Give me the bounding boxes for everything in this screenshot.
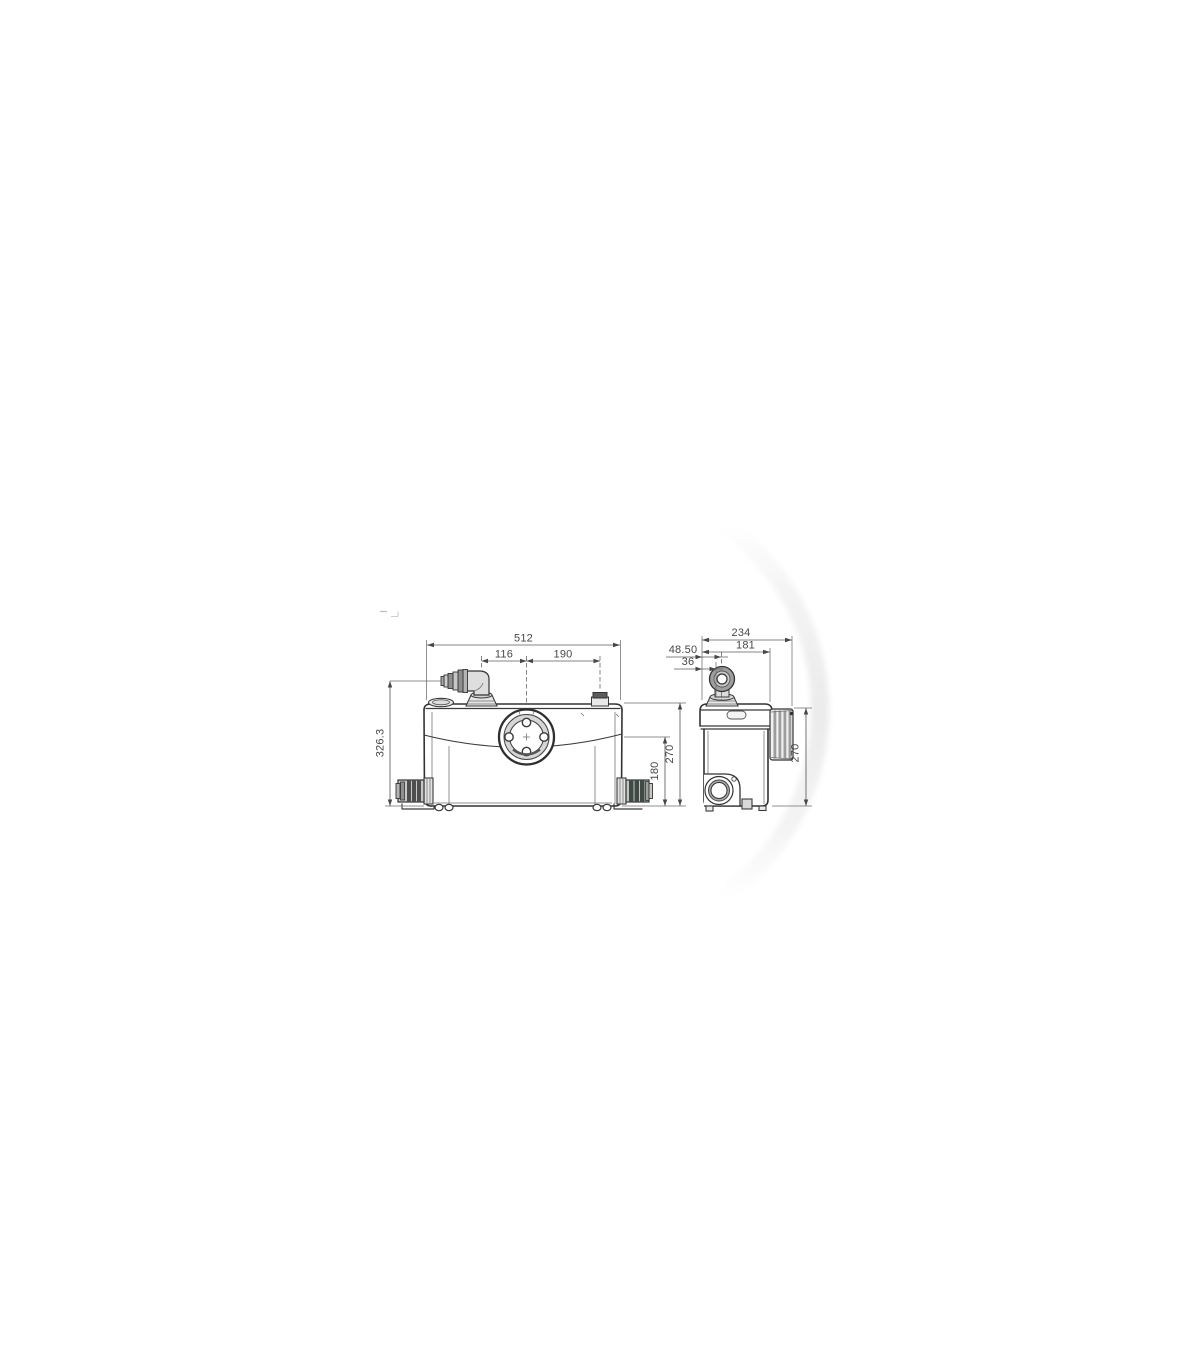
dim-front-inlet-height: 180 — [649, 762, 661, 781]
side-inlet-connector-left — [396, 778, 434, 809]
dim-side-outlet-center-offset: 36 — [682, 656, 695, 668]
dim-side-outlet-back-offset: 48.50 — [669, 644, 698, 656]
dim-front-overall-width: 512 — [514, 633, 533, 645]
side-inlet-connector-right — [614, 778, 653, 809]
technical-drawing-page: 512 116 190 326.3 180 270 234 181 48.50 … — [0, 0, 1200, 1372]
artifact-marks — [380, 612, 398, 617]
dim-front-body-height: 270 — [664, 745, 676, 764]
dim-front-center-to-vent: 190 — [554, 649, 573, 661]
dimension-annotations: 512 116 190 326.3 180 270 234 181 48.50 … — [375, 627, 813, 806]
dim-side-overall-depth: 234 — [732, 627, 751, 639]
dimension-arrows — [388, 638, 808, 806]
dim-front-outlet-to-center: 116 — [495, 649, 513, 661]
dim-front-overall-height: 326.3 — [375, 729, 387, 758]
dimension-lines — [390, 640, 806, 806]
side-inlet-port — [704, 774, 740, 806]
dimension-drawing-svg: 512 116 190 326.3 180 270 234 181 48.50 … — [0, 0, 1200, 1372]
lid-plug-cap — [429, 698, 454, 706]
side-discharge-elbow — [706, 667, 738, 707]
side-view — [700, 667, 793, 812]
vent-connection — [592, 693, 609, 707]
front-view — [396, 670, 653, 811]
dim-side-body-height: 270 — [790, 744, 802, 763]
dim-side-body-depth: 181 — [736, 640, 755, 652]
inspection-cover — [499, 710, 554, 765]
